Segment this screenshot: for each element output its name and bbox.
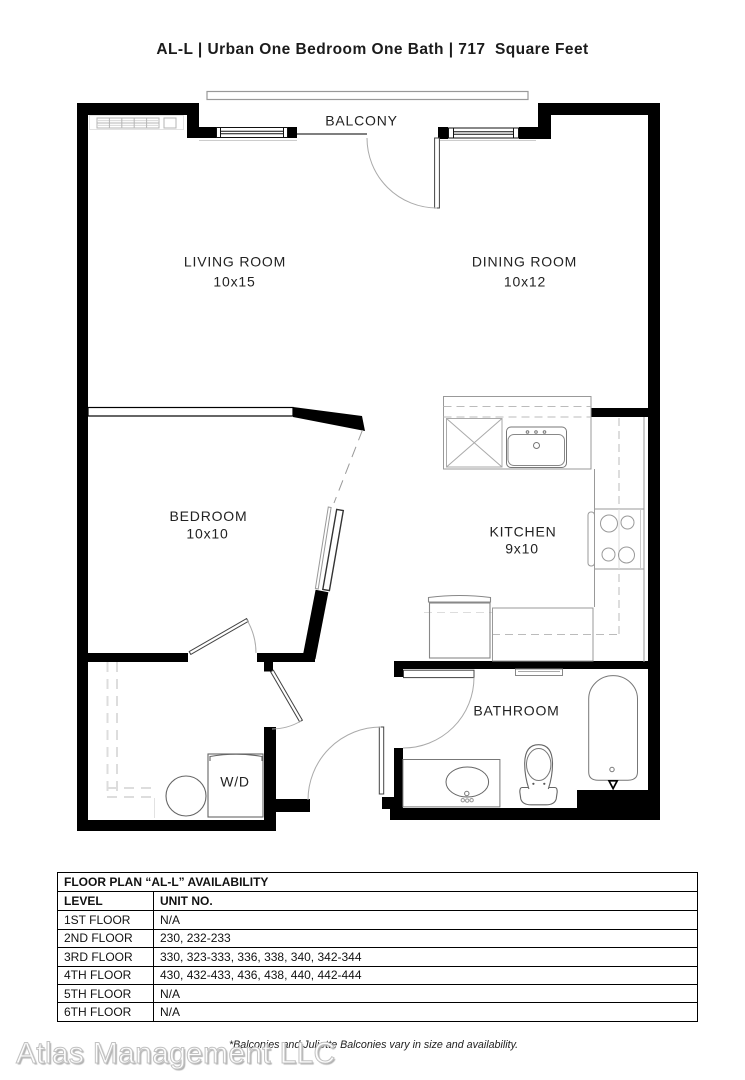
svg-text:10x15: 10x15 (213, 274, 255, 290)
svg-text:BATHROOM: BATHROOM (473, 703, 559, 719)
svg-text:9x10: 9x10 (505, 541, 539, 557)
svg-text:W/D: W/D (220, 774, 250, 790)
svg-text:BEDROOM: BEDROOM (170, 508, 248, 524)
svg-text:LIVING ROOM: LIVING ROOM (184, 254, 286, 270)
svg-text:DINING ROOM: DINING ROOM (472, 254, 577, 270)
svg-text:10x10: 10x10 (186, 526, 228, 542)
svg-text:BALCONY: BALCONY (325, 113, 398, 129)
svg-text:10x12: 10x12 (504, 274, 546, 290)
svg-text:KITCHEN: KITCHEN (489, 524, 556, 540)
